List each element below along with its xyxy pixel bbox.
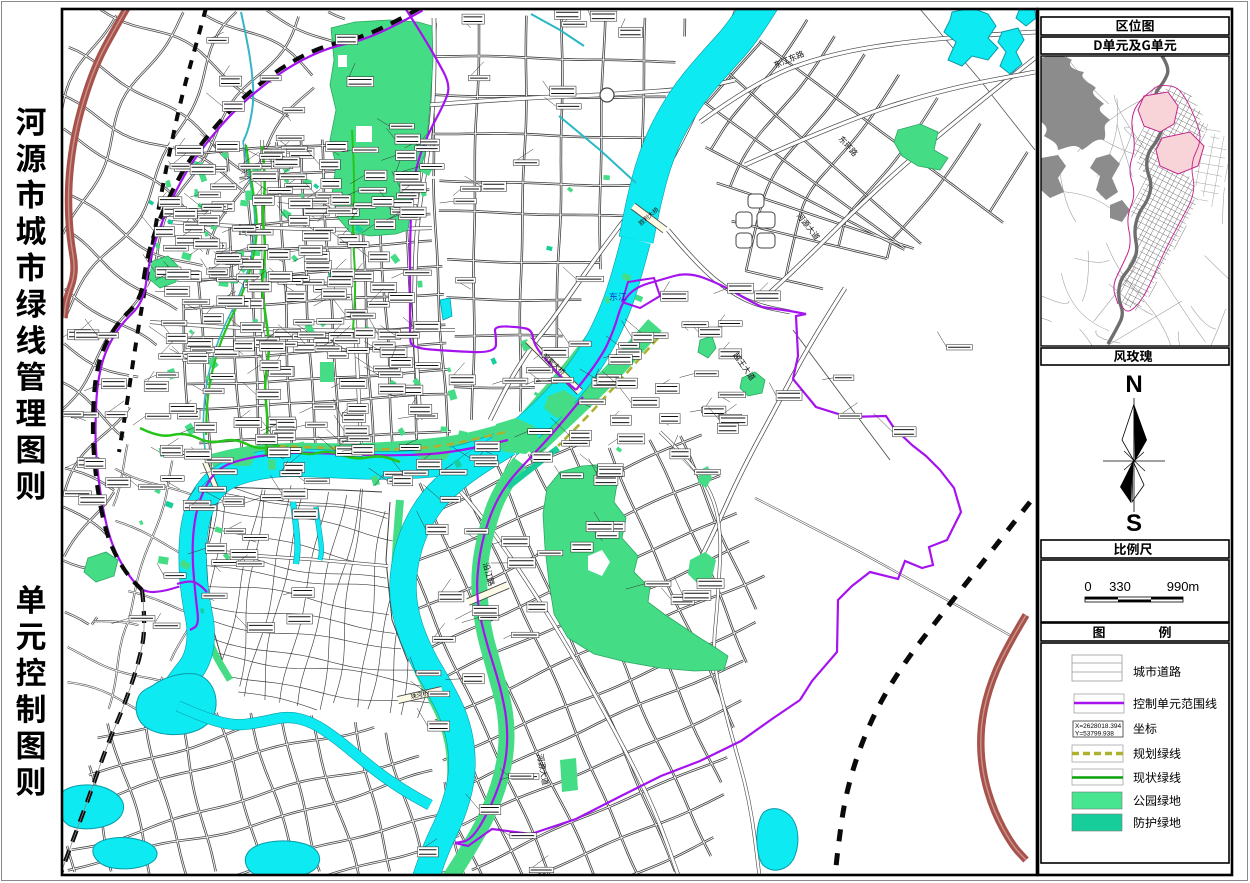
svg-text:N: N: [1125, 371, 1142, 398]
svg-text:330: 330: [1109, 579, 1131, 594]
svg-text:Y=53799.938: Y=53799.938: [1075, 731, 1114, 738]
svg-text:X=2628018.394: X=2628018.394: [1075, 723, 1121, 730]
svg-text:S: S: [1126, 510, 1142, 537]
svg-text:990m: 990m: [1167, 579, 1200, 594]
svg-text:0: 0: [1084, 579, 1091, 594]
